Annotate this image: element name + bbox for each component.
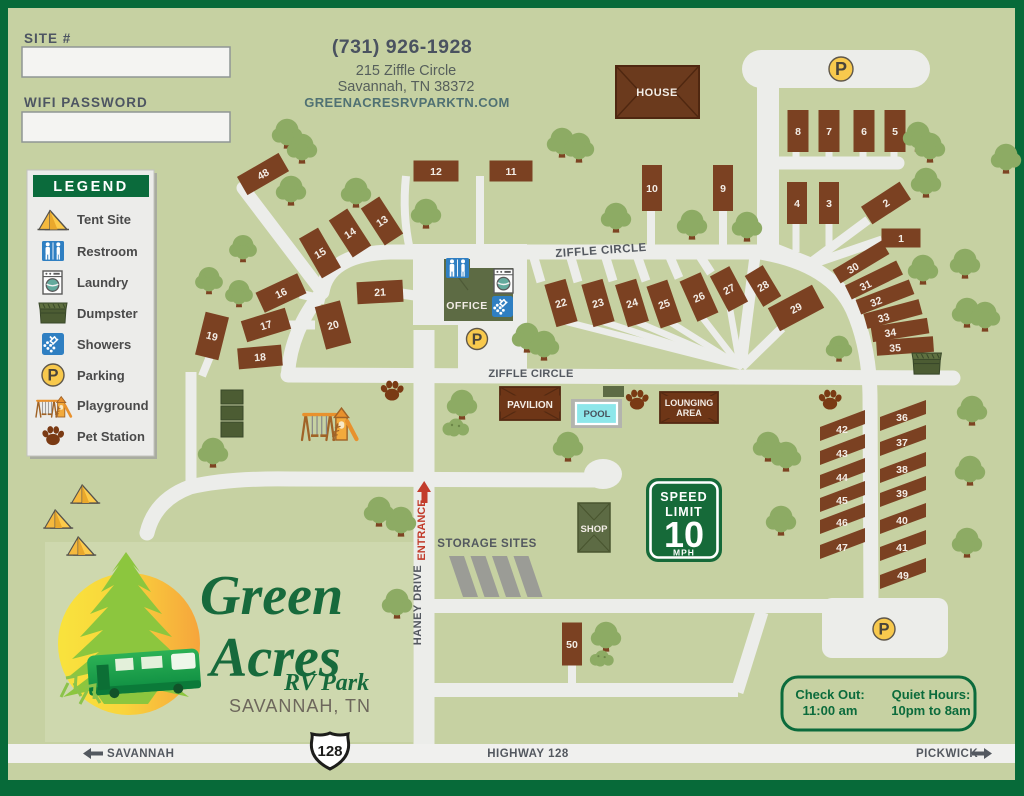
svg-text:Pet Station: Pet Station (77, 429, 145, 444)
svg-text:8: 8 (795, 126, 801, 138)
svg-text:18: 18 (254, 351, 267, 364)
svg-text:37: 37 (896, 437, 908, 449)
svg-text:Laundry: Laundry (77, 275, 129, 290)
svg-text:49: 49 (897, 570, 909, 582)
svg-text:45: 45 (836, 495, 848, 507)
svg-text:7: 7 (826, 126, 832, 138)
svg-text:ENTRANCE: ENTRANCE (416, 499, 428, 560)
svg-text:11:00 am: 11:00 am (803, 703, 858, 718)
svg-text:35: 35 (889, 342, 902, 355)
svg-text:(731) 926-1928: (731) 926-1928 (332, 36, 472, 58)
svg-text:PAVILION: PAVILION (507, 400, 553, 411)
svg-text:40: 40 (896, 515, 908, 527)
svg-text:Parking: Parking (77, 368, 125, 383)
svg-text:HIGHWAY 128: HIGHWAY 128 (487, 748, 569, 760)
svg-text:3: 3 (826, 198, 832, 210)
svg-text:WIFI PASSWORD: WIFI PASSWORD (24, 95, 148, 110)
svg-text:4: 4 (794, 198, 800, 210)
svg-text:P: P (47, 367, 58, 385)
svg-text:SHOP: SHOP (581, 524, 609, 535)
svg-text:39: 39 (896, 488, 908, 500)
svg-text:LOUNGING: LOUNGING (665, 398, 714, 408)
svg-text:6: 6 (861, 126, 867, 138)
svg-text:44: 44 (836, 472, 848, 484)
svg-text:42: 42 (836, 424, 848, 436)
svg-text:128: 128 (317, 743, 342, 760)
svg-text:HOUSE: HOUSE (636, 87, 678, 99)
svg-text:P: P (835, 59, 847, 79)
svg-text:ZIFFLE CIRCLE: ZIFFLE CIRCLE (488, 368, 573, 380)
svg-text:HANEY DRIVE: HANEY DRIVE (412, 565, 424, 645)
svg-text:SITE #: SITE # (24, 31, 71, 46)
svg-text:SAVANNAH, TN: SAVANNAH, TN (229, 696, 371, 716)
svg-text:Dumpster: Dumpster (77, 306, 138, 321)
svg-text:38: 38 (896, 464, 908, 476)
svg-text:Savannah, TN 38372: Savannah, TN 38372 (338, 79, 475, 95)
svg-text:11: 11 (505, 166, 516, 178)
svg-text:34: 34 (884, 326, 898, 340)
svg-text:41: 41 (896, 542, 908, 554)
svg-text:Check Out:: Check Out: (795, 687, 864, 702)
svg-text:GREENACRESRVPARKTN.COM: GREENACRESRVPARKTN.COM (304, 95, 510, 110)
svg-text:Quiet Hours:: Quiet Hours: (892, 687, 971, 702)
svg-text:12: 12 (430, 166, 442, 178)
svg-text:21: 21 (374, 286, 386, 299)
svg-text:P: P (878, 621, 889, 639)
svg-text:P: P (472, 331, 483, 348)
svg-text:PICKWICK: PICKWICK (916, 748, 978, 760)
svg-text:AREA: AREA (676, 408, 702, 418)
svg-text:46: 46 (836, 517, 848, 529)
svg-text:RV Park: RV Park (283, 670, 369, 696)
svg-text:215 Ziffle Circle: 215 Ziffle Circle (356, 63, 456, 79)
svg-text:LEGEND: LEGEND (53, 179, 128, 195)
svg-text:Green: Green (200, 565, 343, 627)
svg-text:10: 10 (646, 183, 658, 195)
svg-text:1: 1 (898, 233, 904, 245)
svg-text:47: 47 (836, 542, 848, 554)
svg-text:43: 43 (836, 448, 848, 460)
svg-text:POOL: POOL (584, 409, 611, 420)
svg-text:Tent Site: Tent Site (77, 212, 131, 227)
svg-text:50: 50 (566, 639, 578, 651)
svg-text:Showers: Showers (77, 337, 131, 352)
svg-text:36: 36 (896, 412, 908, 424)
svg-text:9: 9 (720, 183, 726, 195)
svg-text:MPH: MPH (673, 548, 695, 558)
svg-text:10pm to 8am: 10pm to 8am (891, 703, 970, 718)
svg-text:Restroom: Restroom (77, 244, 138, 259)
svg-text:SAVANNAH: SAVANNAH (107, 748, 174, 760)
svg-text:Playground: Playground (77, 398, 149, 413)
svg-text:STORAGE SITES: STORAGE SITES (437, 538, 537, 550)
svg-text:5: 5 (892, 126, 898, 138)
svg-text:OFFICE: OFFICE (446, 300, 488, 312)
svg-text:SPEED: SPEED (660, 490, 707, 504)
